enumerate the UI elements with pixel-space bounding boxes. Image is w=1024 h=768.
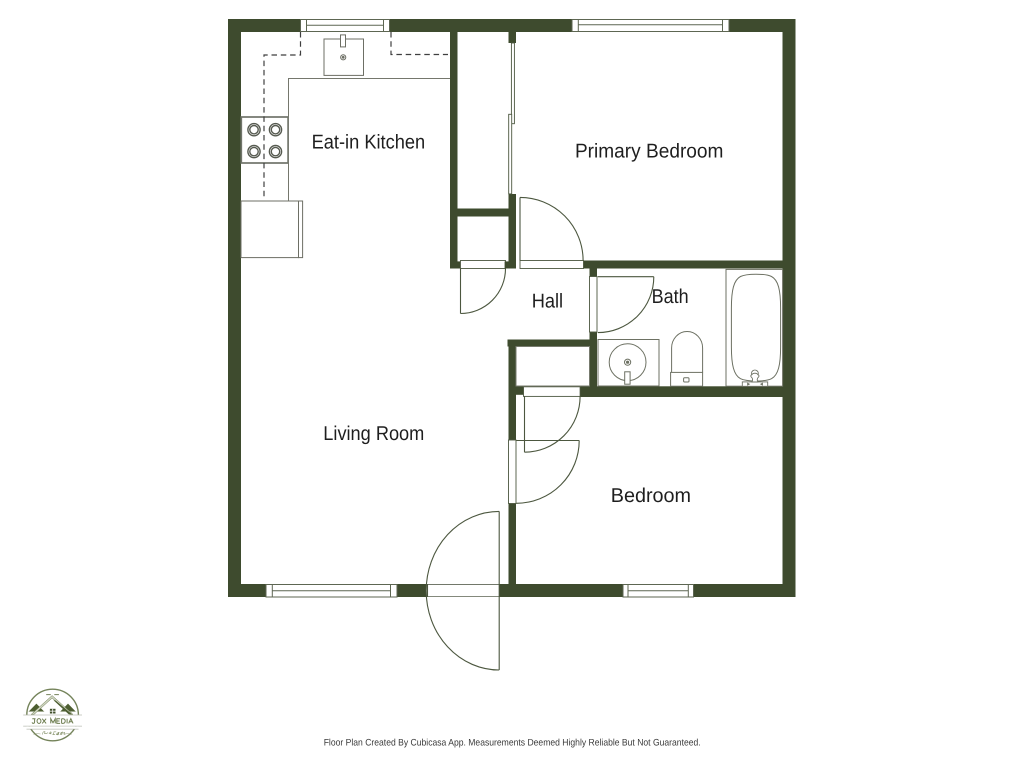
svg-text:Hall: Hall: [532, 290, 563, 312]
svg-text:Bath: Bath: [652, 286, 689, 308]
svg-text:Living Room: Living Room: [323, 423, 424, 445]
svg-text:Eat-in Kitchen: Eat-in Kitchen: [312, 131, 426, 153]
svg-text:Floor Plan Created By Cubicasa: Floor Plan Created By Cubicasa App. Meas…: [324, 737, 701, 748]
svg-text:Primary Bedroom: Primary Bedroom: [575, 141, 724, 163]
svg-text:Bedroom: Bedroom: [611, 485, 691, 507]
